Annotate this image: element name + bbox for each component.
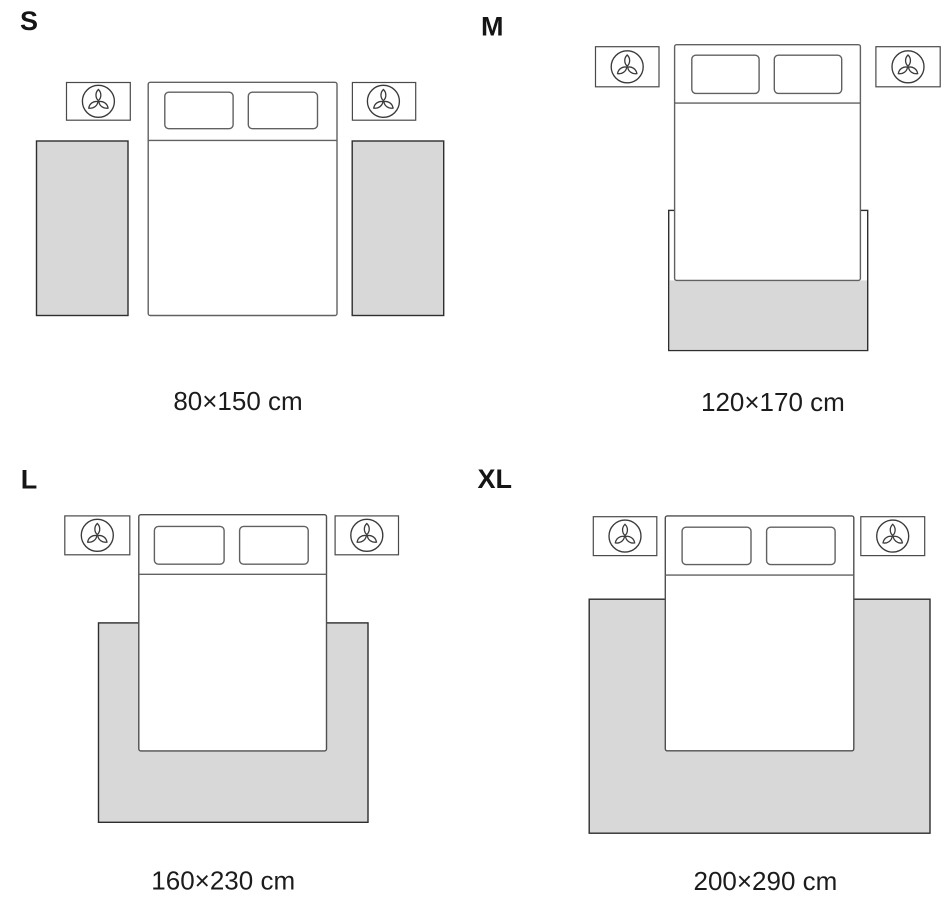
svg-text:S: S	[20, 6, 38, 36]
svg-text:80×150 cm: 80×150 cm	[173, 386, 302, 416]
svg-text:120×170 cm: 120×170 cm	[701, 387, 845, 417]
svg-text:L: L	[21, 465, 38, 495]
svg-text:160×230 cm: 160×230 cm	[151, 866, 295, 896]
svg-text:200×290 cm: 200×290 cm	[693, 866, 837, 896]
svg-text:XL: XL	[478, 464, 513, 494]
svg-text:M: M	[481, 12, 504, 42]
